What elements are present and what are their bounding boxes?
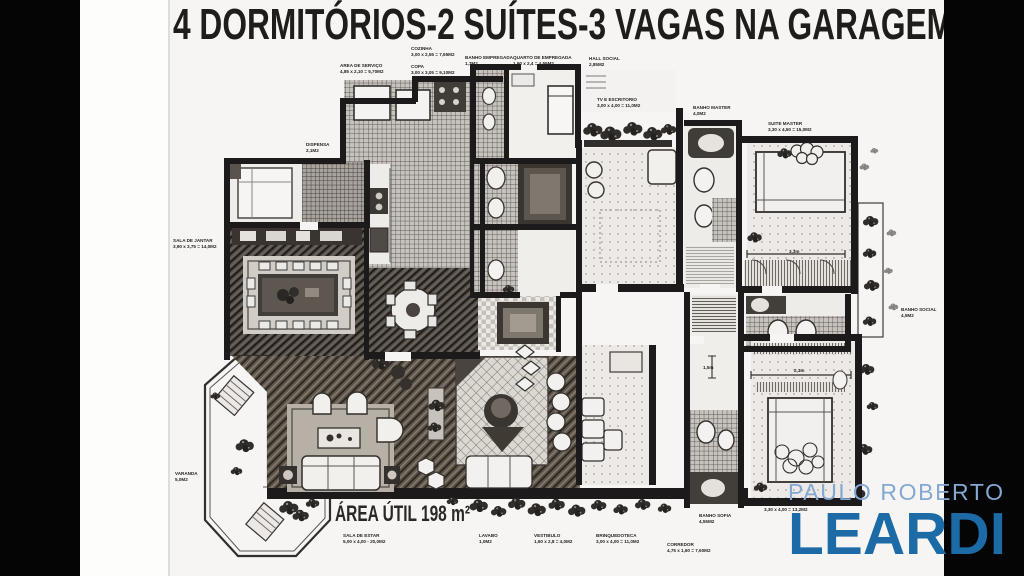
svg-text:4 DORMITÓRIOS-2 SUÍTES-3 VAGAS: 4 DORMITÓRIOS-2 SUÍTES-3 VAGAS NA GARAGE…	[173, 0, 953, 49]
svg-text:LEARDI: LEARDI	[788, 501, 1006, 567]
